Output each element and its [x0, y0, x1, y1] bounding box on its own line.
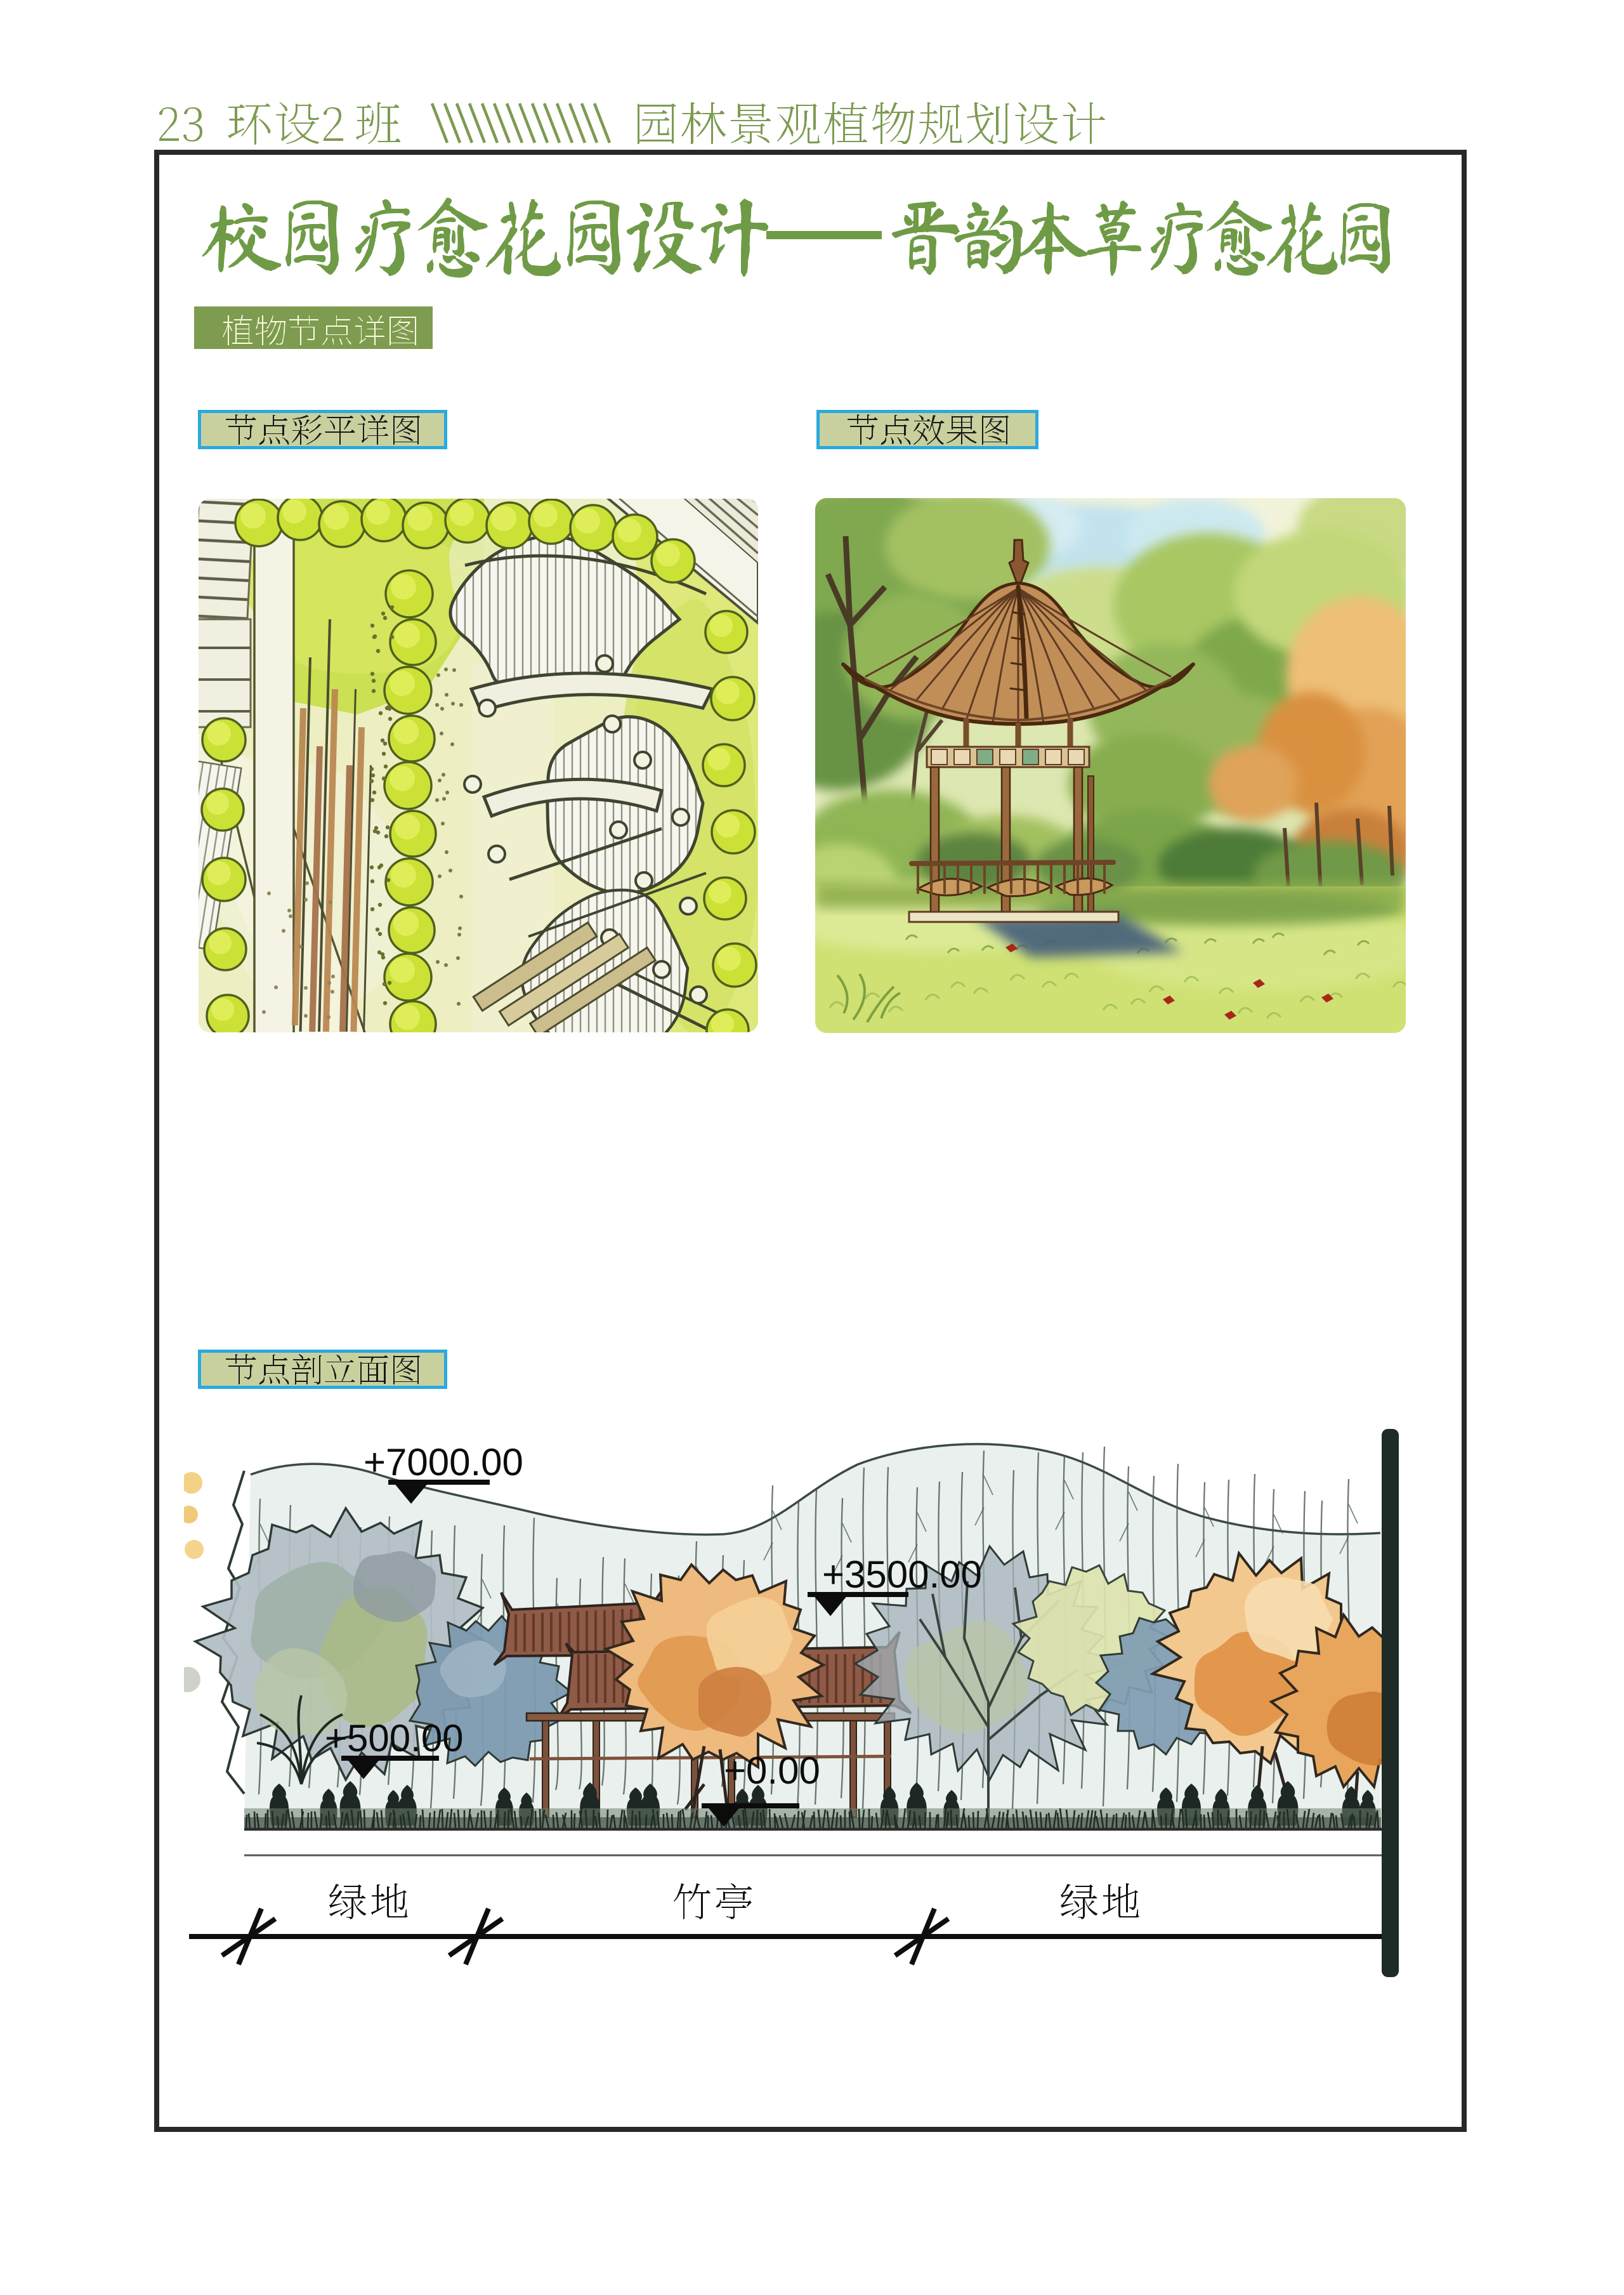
- svg-text:+0.00: +0.00: [724, 1749, 820, 1792]
- svg-text:+500.00: +500.00: [325, 1717, 464, 1759]
- svg-text:+3500.00: +3500.00: [822, 1553, 982, 1596]
- svg-text:+7000.00: +7000.00: [363, 1441, 523, 1483]
